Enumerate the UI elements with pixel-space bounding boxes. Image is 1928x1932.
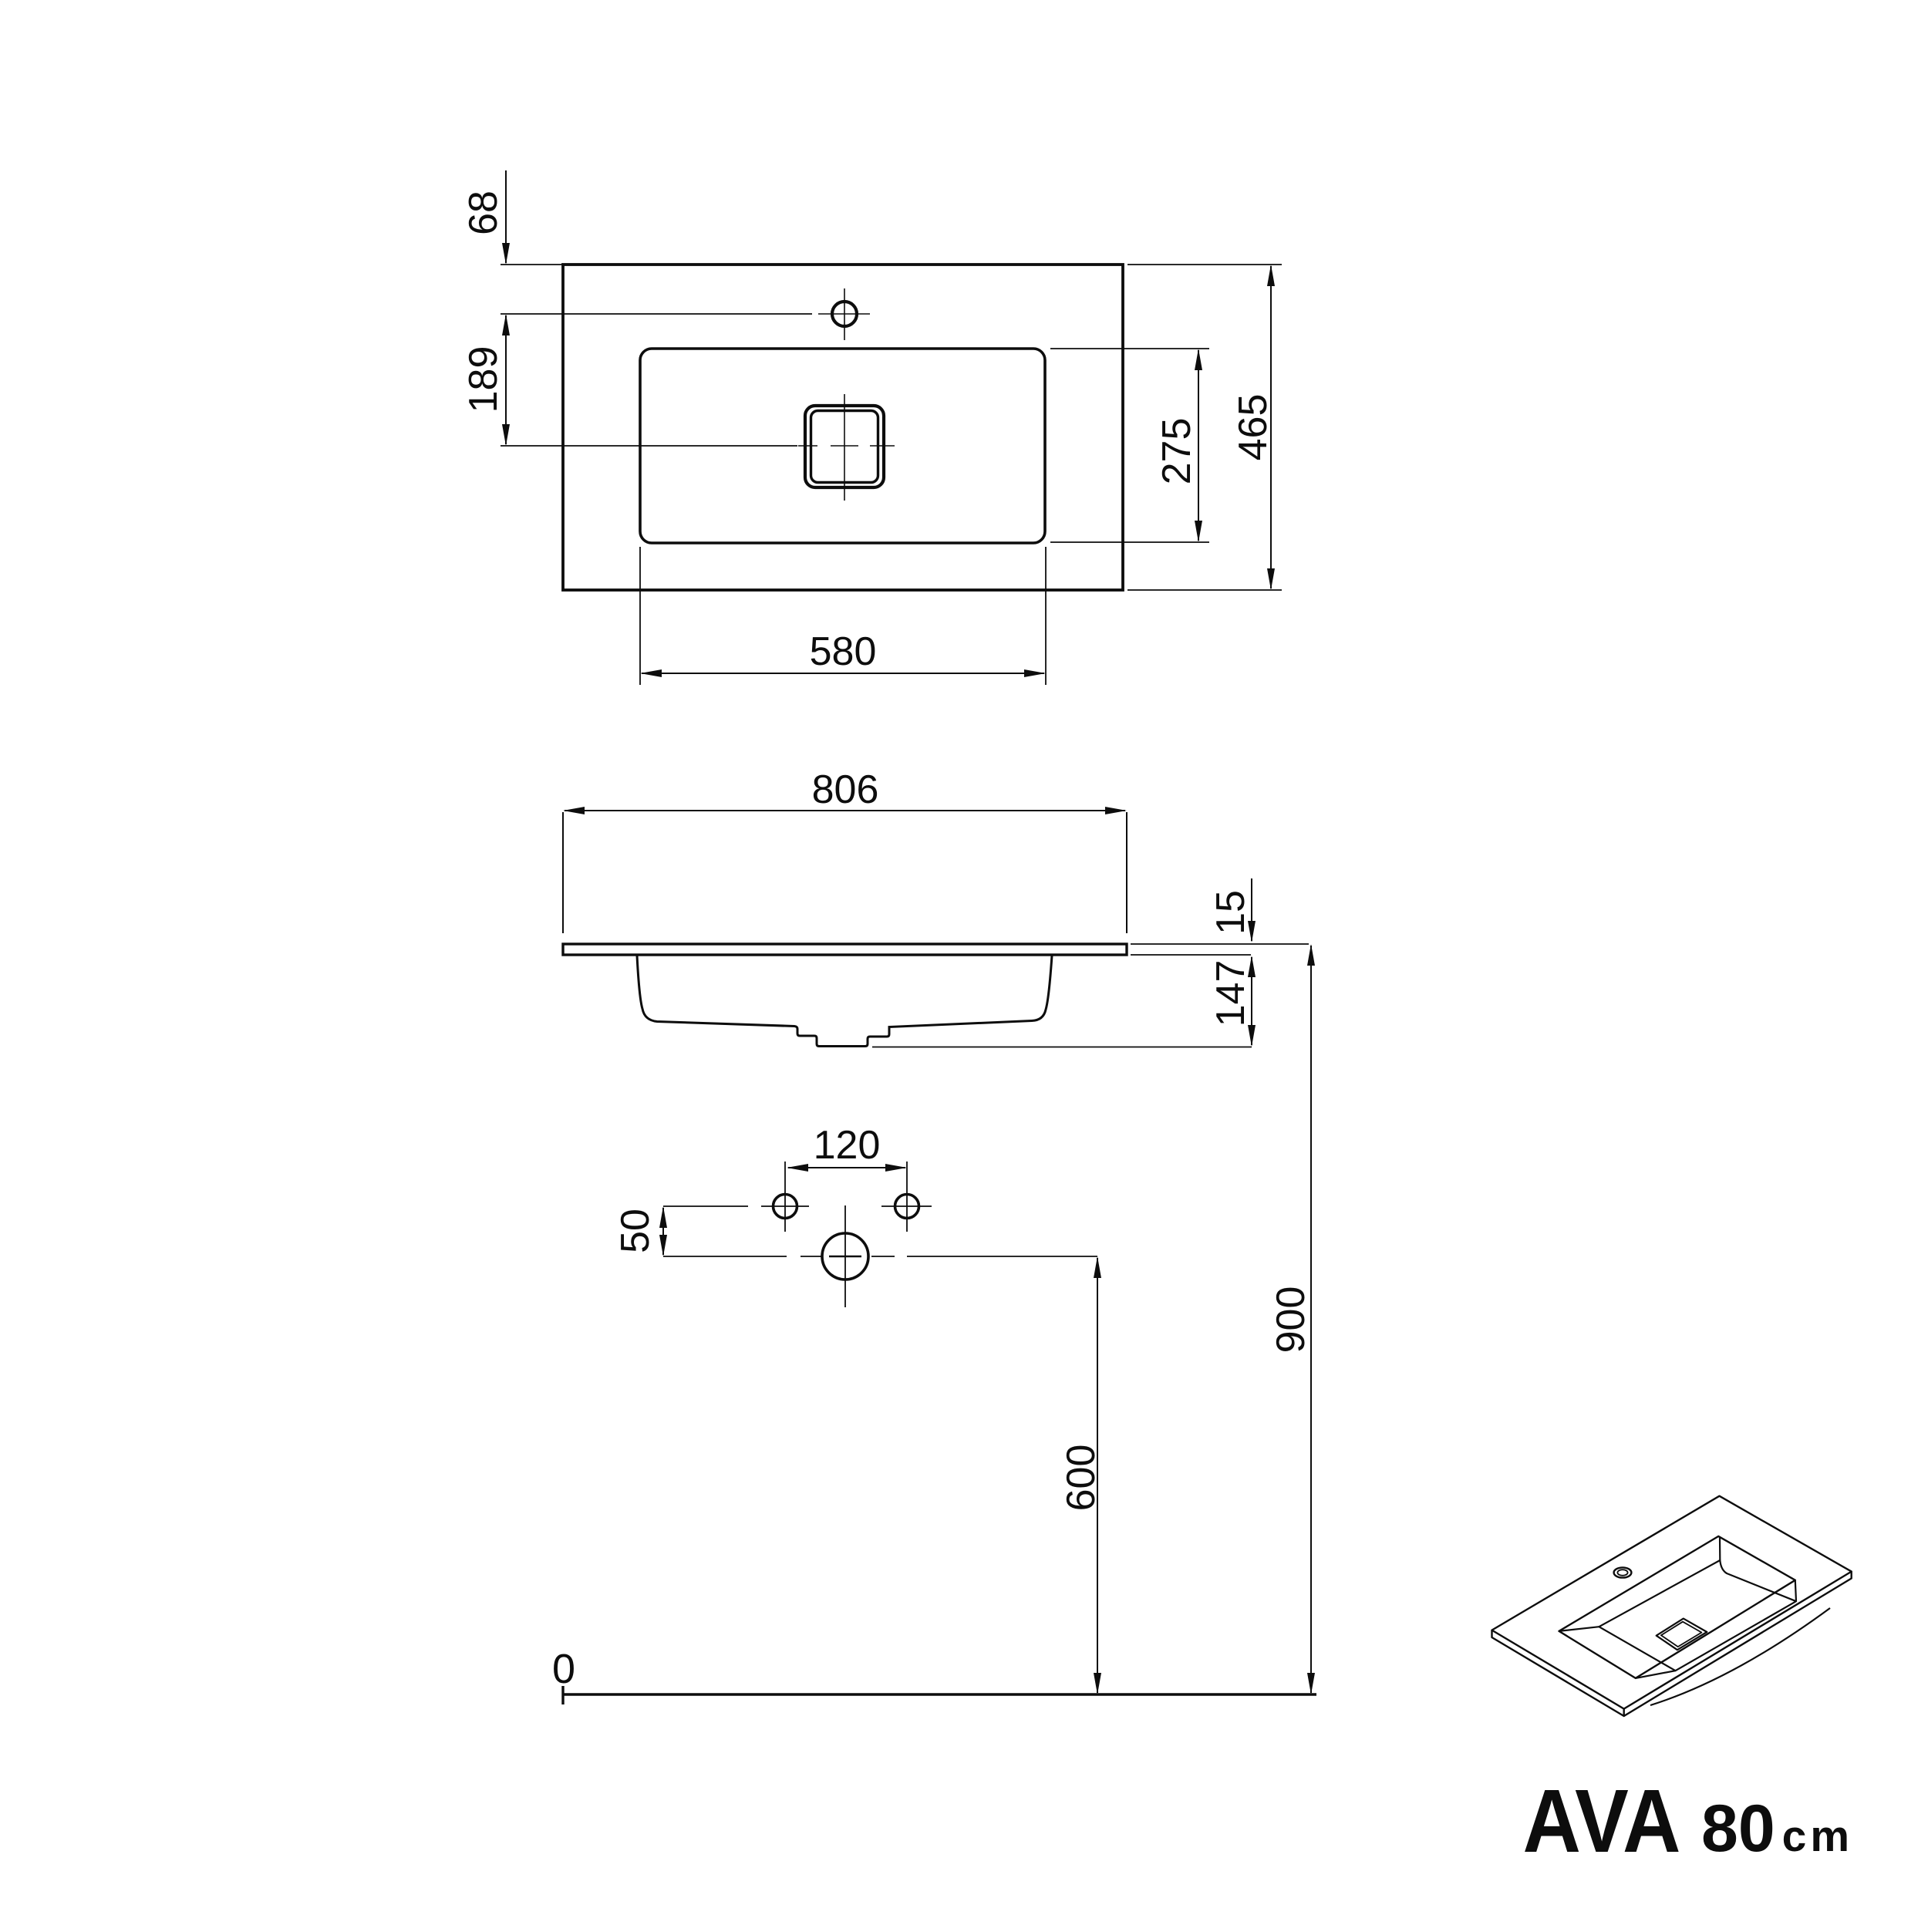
svg-text:189: 189 <box>461 346 506 413</box>
svg-text:806: 806 <box>812 767 879 812</box>
svg-text:275: 275 <box>1154 418 1199 485</box>
svg-text:120: 120 <box>814 1123 881 1168</box>
svg-text:580: 580 <box>810 629 877 674</box>
svg-text:80cm: 80cm <box>1701 1792 1853 1866</box>
svg-text:0: 0 <box>552 1646 575 1692</box>
svg-text:AVA: AVA <box>1523 1772 1681 1871</box>
svg-text:147: 147 <box>1208 960 1253 1027</box>
svg-text:900: 900 <box>1269 1286 1313 1354</box>
svg-text:15: 15 <box>1208 890 1253 935</box>
svg-text:50: 50 <box>613 1209 658 1253</box>
svg-text:68: 68 <box>461 191 506 235</box>
svg-text:465: 465 <box>1231 394 1276 461</box>
svg-text:600: 600 <box>1059 1445 1104 1512</box>
